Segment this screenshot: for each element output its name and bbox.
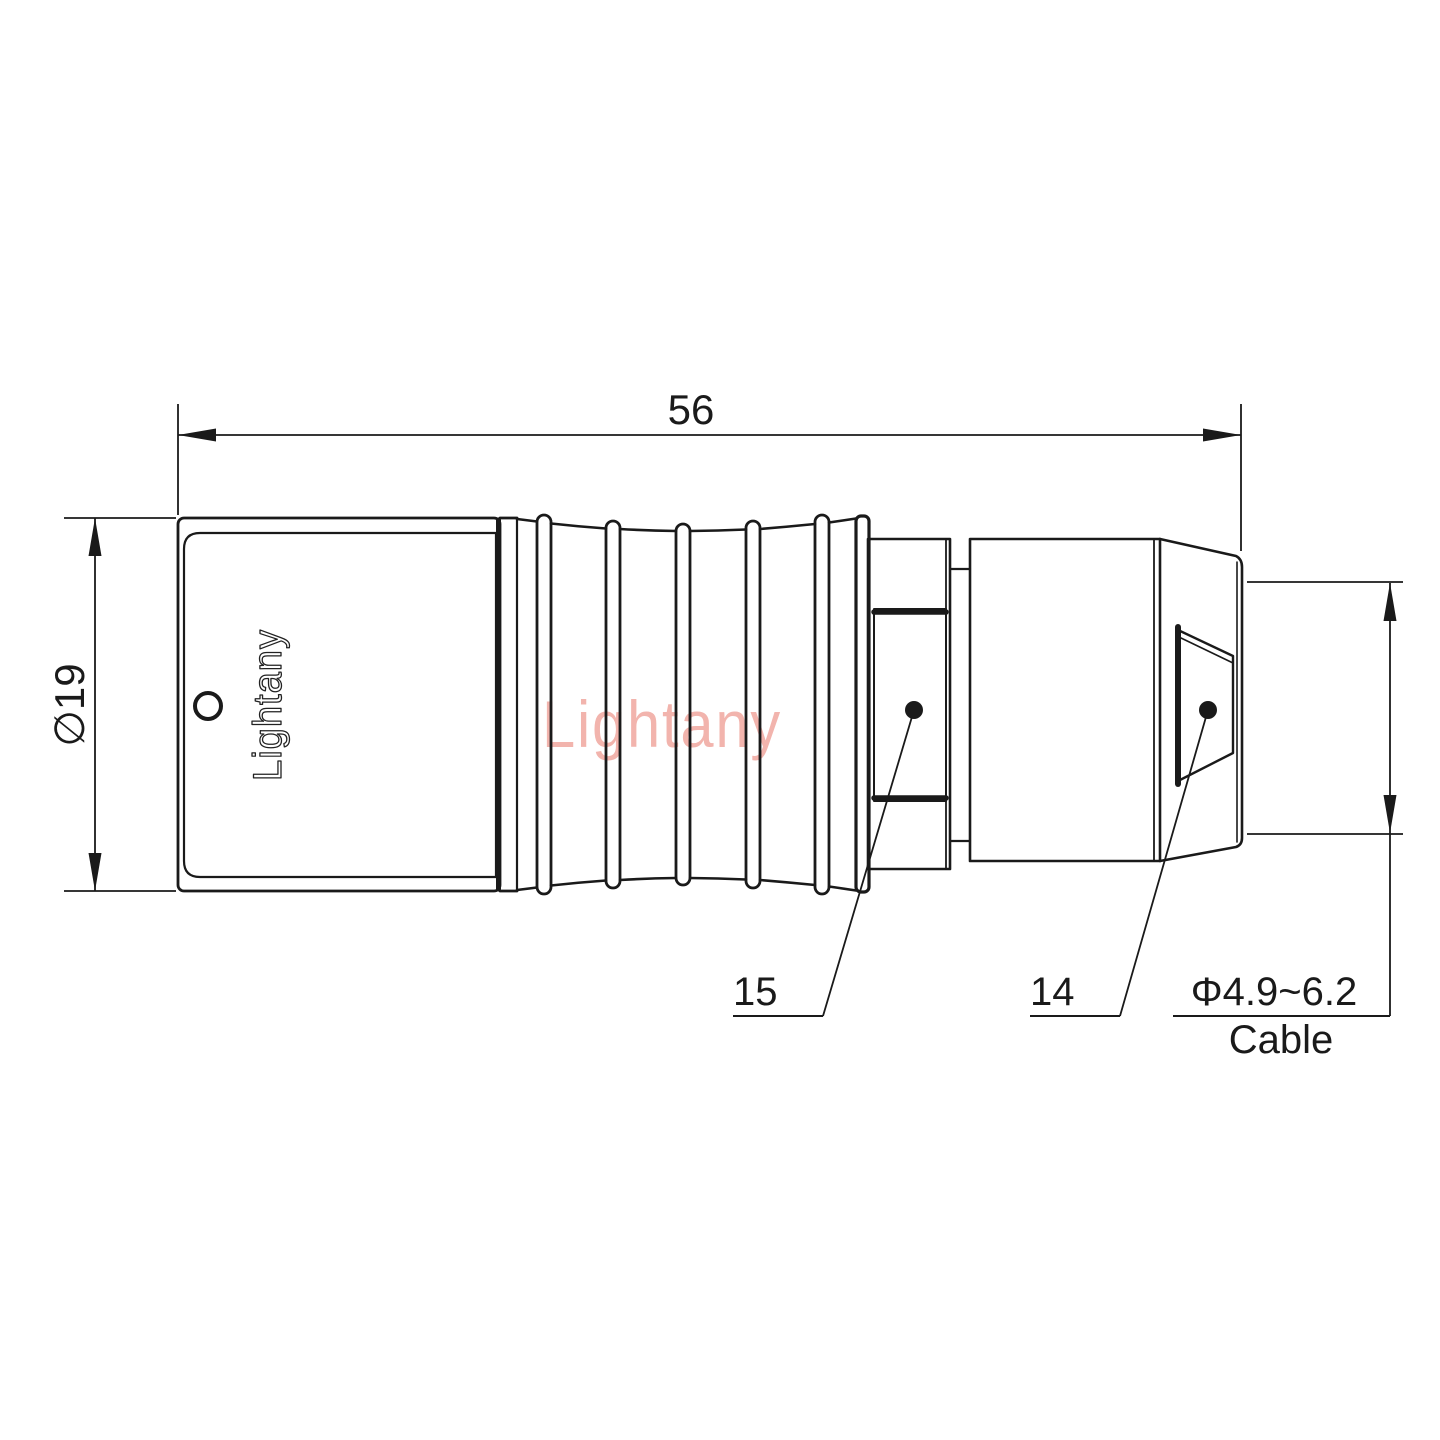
arrowhead-cable-down [1384, 795, 1397, 833]
back-nut-fill [970, 539, 1160, 861]
connector-drawing: Lightany Lightany [0, 0, 1440, 1440]
arrowhead-right [1203, 429, 1241, 442]
boot-surface-segment [690, 878, 746, 880]
front-sleeve-fill [178, 518, 500, 891]
brand-engraving-text: Lightany [246, 629, 290, 781]
callout-15-dot [905, 701, 923, 719]
dim-text-diameter: ∅19 [46, 663, 93, 746]
dim-text-length: 56 [668, 386, 715, 433]
boot-rib-fill [815, 515, 829, 894]
cable-word-text: Cable [1229, 1018, 1334, 1062]
arrowhead-down [89, 853, 102, 891]
cable-cone-fill [1160, 539, 1242, 861]
arrowhead-left [178, 429, 216, 442]
arrowhead-cable-up [1384, 583, 1397, 621]
callout-14-dot [1199, 701, 1217, 719]
arrowhead-up [89, 518, 102, 556]
technical-drawing-canvas: Lightany Lightany [0, 0, 1440, 1440]
part-label-14: 14 [1030, 970, 1075, 1014]
cable-range-text: Φ4.9~6.2 [1191, 970, 1357, 1014]
boot-surface-segment [690, 530, 746, 532]
part-label-15: 15 [733, 970, 778, 1014]
